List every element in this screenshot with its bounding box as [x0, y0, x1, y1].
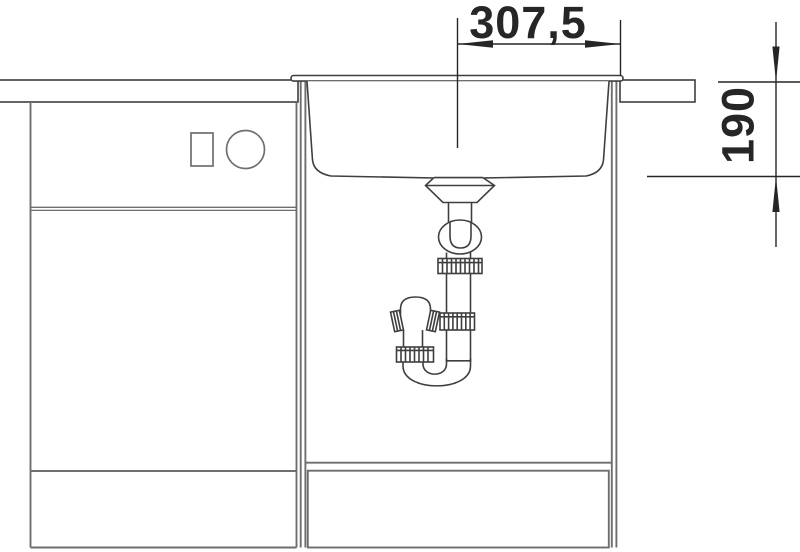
appliance-knob	[227, 131, 265, 169]
dim-arrow-right	[585, 40, 621, 48]
countertop-left-section	[0, 80, 298, 102]
sink-cabinet-plinth	[308, 471, 609, 548]
technical-drawing-page: 307,5 190	[0, 0, 800, 552]
siphon-inlet-cap	[401, 297, 431, 318]
dim-label-width: 307,5	[469, 0, 587, 48]
sink-installation-drawing: 307,5 190	[0, 0, 800, 552]
dim-arrow-down	[772, 47, 779, 83]
dim-arrow-up	[772, 177, 779, 213]
countertop-right-section	[620, 80, 695, 102]
appliance-display-panel	[191, 133, 213, 166]
dimension-vertical: 190	[647, 22, 800, 247]
dim-label-depth: 190	[713, 86, 764, 164]
siphon-ball-joint	[439, 220, 482, 254]
siphon-assembly	[391, 203, 482, 386]
